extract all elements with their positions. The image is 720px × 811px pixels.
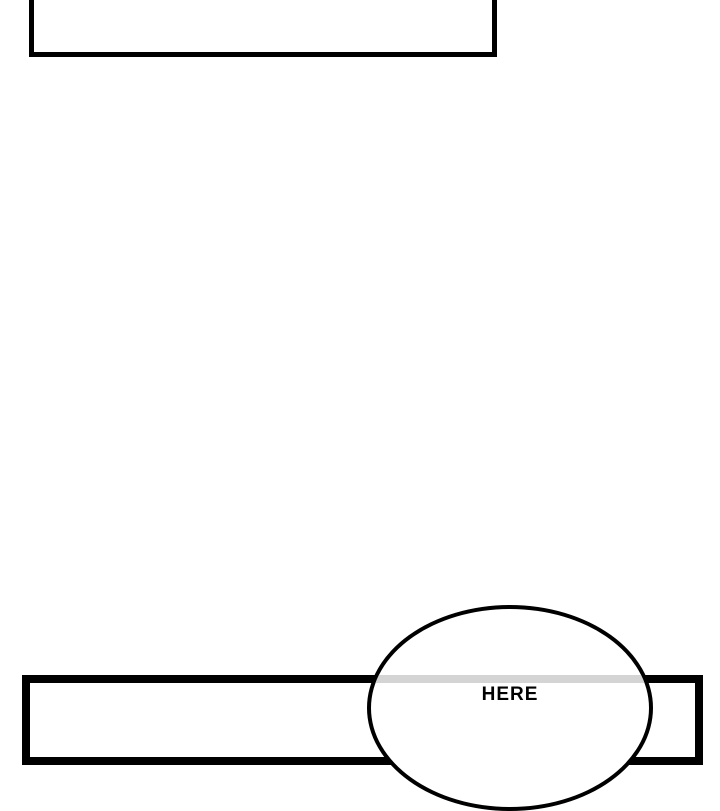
comic-panel-top xyxy=(29,0,497,57)
speech-bubble: HERE xyxy=(367,605,653,811)
panel-border-through-bubble xyxy=(367,675,653,683)
comic-page: HERE xyxy=(0,0,720,700)
speech-bubble-text: HERE xyxy=(371,684,649,706)
